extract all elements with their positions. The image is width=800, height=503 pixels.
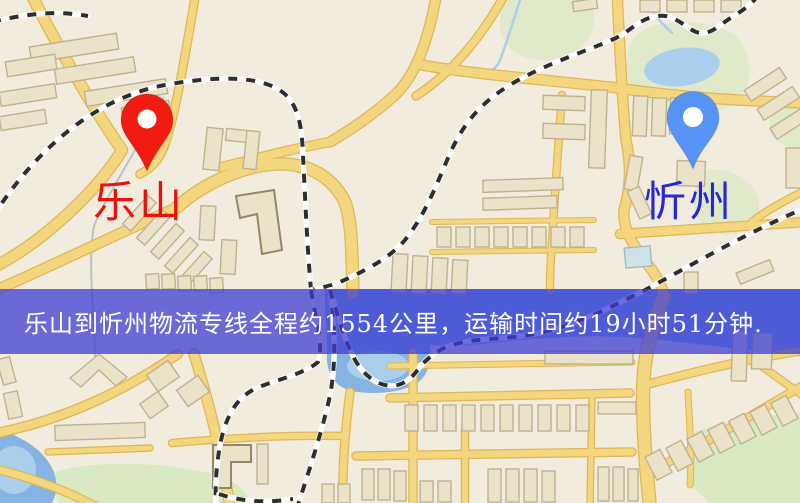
map-canvas: 乐山 忻州 bbox=[0, 0, 800, 503]
route-map: 乐山 忻州 乐山到忻州物流专线全程约1554公里，运输时间约19小时51分钟. bbox=[0, 0, 800, 503]
route-info-banner: 乐山到忻州物流专线全程约1554公里，运输时间约19小时51分钟. bbox=[0, 289, 800, 354]
origin-label: 乐山 bbox=[93, 178, 185, 228]
route-info-text: 乐山到忻州物流专线全程约1554公里，运输时间约19小时51分钟. bbox=[24, 304, 763, 339]
destination-label: 忻州 bbox=[644, 177, 734, 226]
